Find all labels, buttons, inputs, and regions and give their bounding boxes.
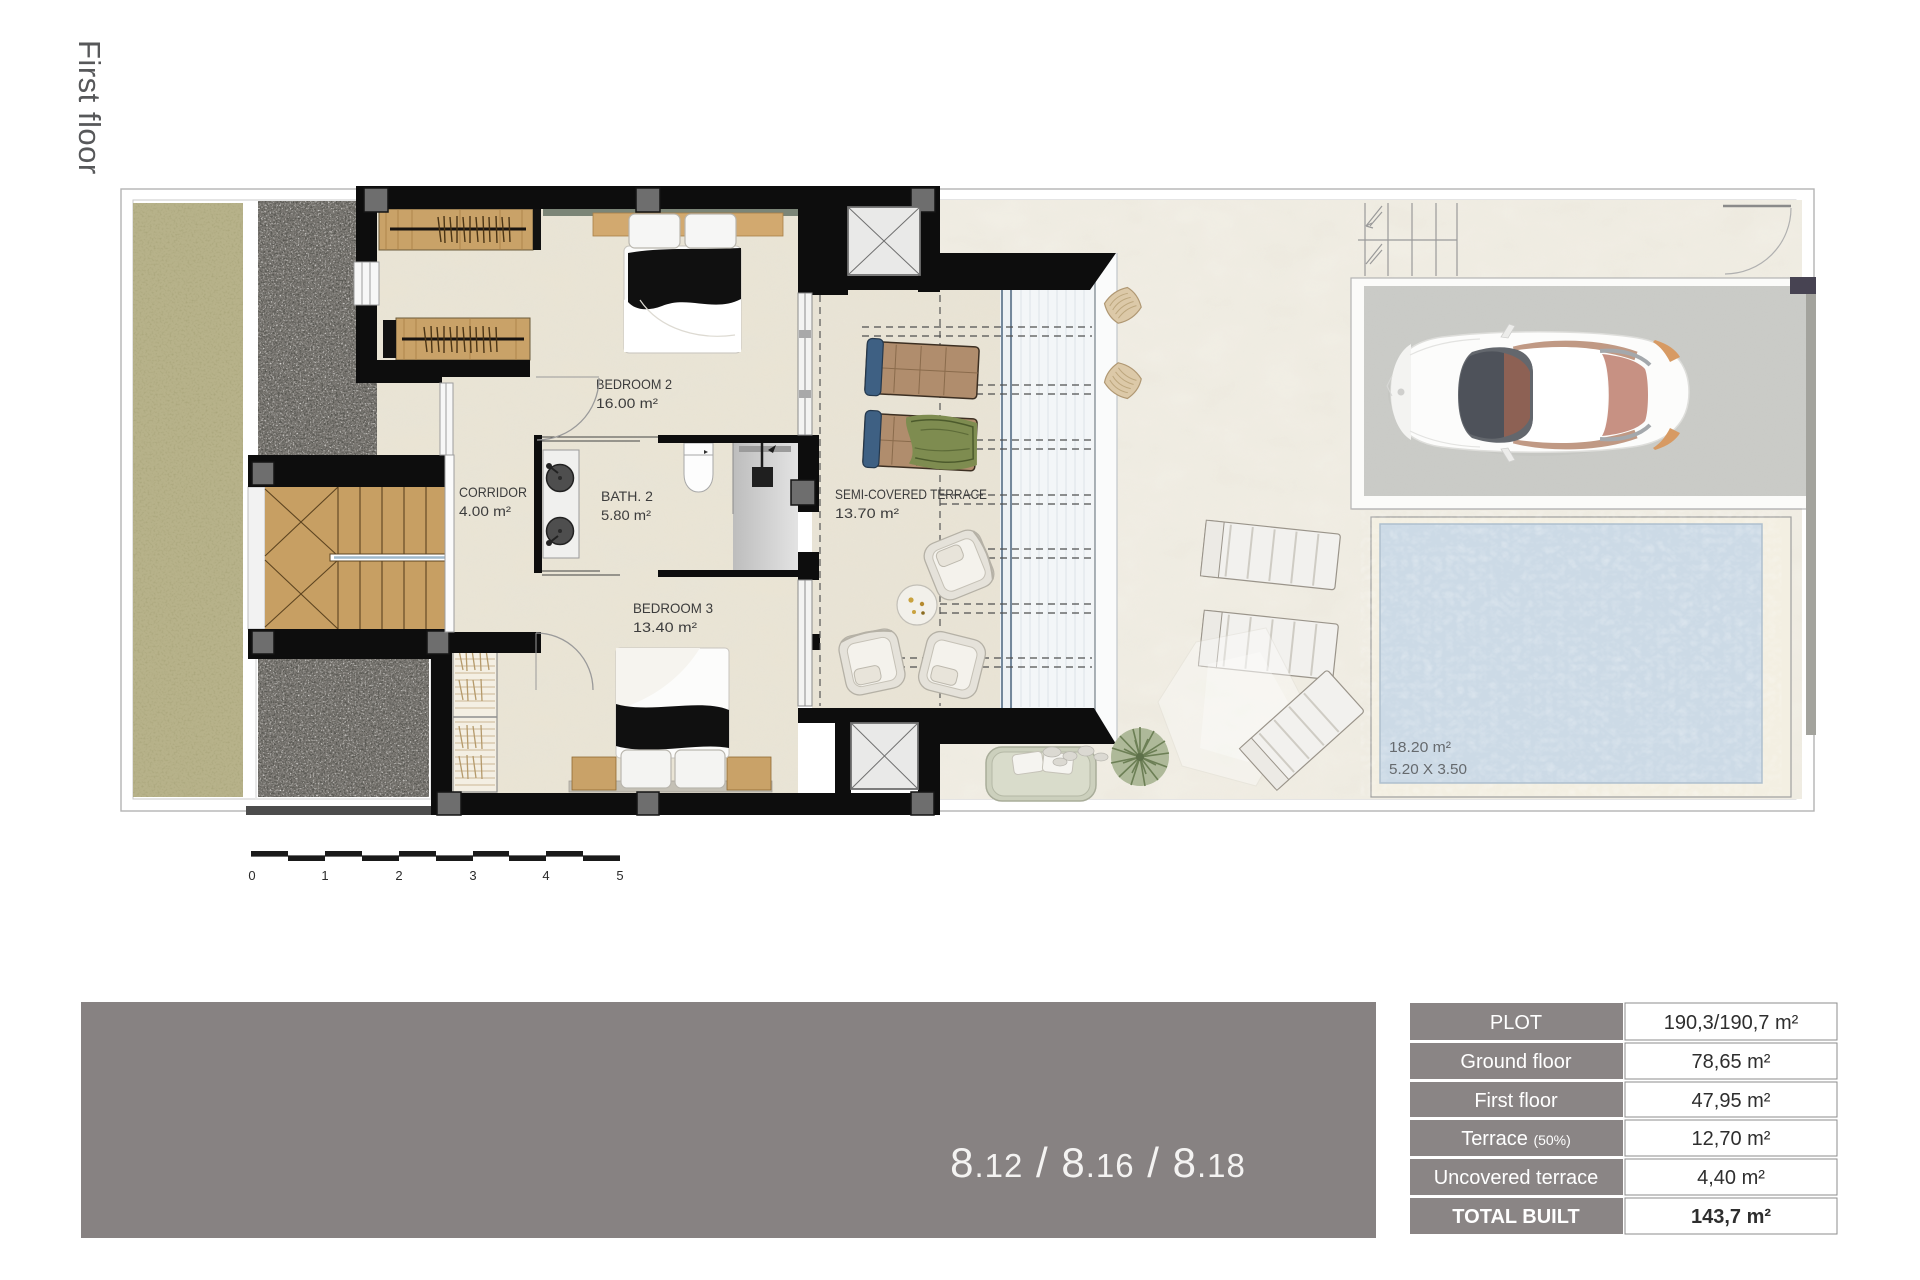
svg-text:3: 3 xyxy=(469,868,476,883)
svg-text:4,40 m²: 4,40 m² xyxy=(1697,1167,1765,1189)
svg-text:First floor: First floor xyxy=(72,40,107,175)
svg-text:First floor: First floor xyxy=(1474,1090,1558,1112)
svg-text:BEDROOM 2: BEDROOM 2 xyxy=(596,376,672,392)
svg-text:16.00 m²: 16.00 m² xyxy=(596,395,658,411)
svg-text:TOTAL BUILT: TOTAL BUILT xyxy=(1452,1206,1579,1228)
svg-text:47,95 m²: 47,95 m² xyxy=(1692,1090,1771,1112)
svg-text:5.20 X 3.50: 5.20 X 3.50 xyxy=(1389,761,1467,778)
svg-text:1: 1 xyxy=(321,868,328,883)
svg-text:143,7 m²: 143,7 m² xyxy=(1691,1206,1771,1228)
svg-text:BATH. 2: BATH. 2 xyxy=(601,488,653,504)
svg-text:5.80 m²: 5.80 m² xyxy=(601,507,651,523)
svg-text:5: 5 xyxy=(616,868,623,883)
svg-text:2: 2 xyxy=(395,868,402,883)
svg-text:8.12 / 8.16 / 8.18: 8.12 / 8.16 / 8.18 xyxy=(950,1139,1246,1186)
svg-text:BEDROOM 3: BEDROOM 3 xyxy=(633,600,713,616)
svg-text:78,65 m²: 78,65 m² xyxy=(1692,1051,1771,1073)
svg-text:PLOT: PLOT xyxy=(1490,1012,1542,1034)
svg-text:13.40 m²: 13.40 m² xyxy=(633,619,697,635)
svg-text:12,70 m²: 12,70 m² xyxy=(1692,1128,1771,1150)
svg-text:0: 0 xyxy=(248,868,255,883)
svg-text:SEMI-COVERED TERRACE: SEMI-COVERED TERRACE xyxy=(835,486,987,502)
svg-text:18.20 m²: 18.20 m² xyxy=(1389,739,1451,756)
svg-text:4.00 m²: 4.00 m² xyxy=(459,503,511,519)
svg-text:Uncovered terrace: Uncovered terrace xyxy=(1434,1167,1599,1189)
svg-text:CORRIDOR: CORRIDOR xyxy=(459,484,527,500)
svg-text:190,3/190,7 m²: 190,3/190,7 m² xyxy=(1664,1012,1799,1034)
svg-text:Ground floor: Ground floor xyxy=(1460,1051,1572,1073)
svg-text:4: 4 xyxy=(542,868,549,883)
svg-text:13.70 m²: 13.70 m² xyxy=(835,505,899,521)
svg-text:Terrace (50%): Terrace (50%) xyxy=(1461,1128,1571,1150)
